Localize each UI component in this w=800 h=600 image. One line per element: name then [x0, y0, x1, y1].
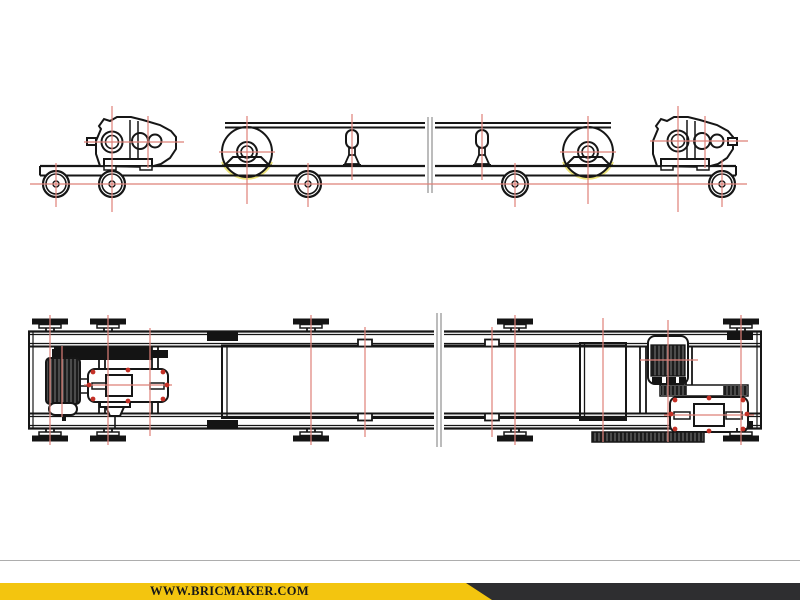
watermark-bar: WWW.BRICMAKER.COM: [0, 583, 800, 600]
right-drive-unit: [653, 117, 737, 170]
footer-hairline: [0, 560, 800, 561]
screenshot-canvas: WWW.BRICMAKER.COM: [0, 0, 800, 600]
cad-drawing: [0, 0, 800, 560]
plan-view: [28, 319, 762, 443]
belt-surface: [222, 346, 626, 419]
chain-strip: [592, 432, 704, 442]
left-drive-unit: [87, 117, 176, 170]
watermark-text: WWW.BRICMAKER.COM: [150, 583, 309, 600]
side-elevation-view: [40, 117, 737, 197]
